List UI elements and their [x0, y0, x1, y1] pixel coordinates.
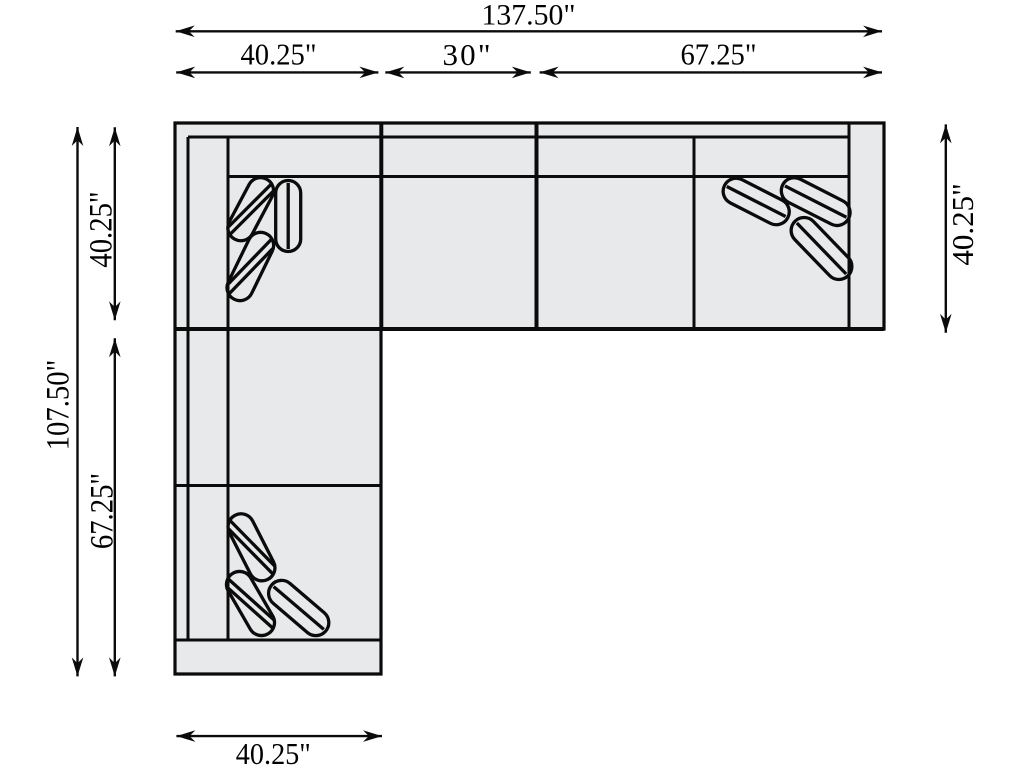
svg-text:40.25": 40.25" [241, 37, 317, 72]
svg-text:40.25": 40.25" [236, 736, 311, 768]
svg-text:40.25": 40.25" [82, 191, 119, 267]
svg-text:30": 30" [443, 37, 491, 72]
svg-text:67.25": 67.25" [83, 473, 120, 549]
svg-text:40.25": 40.25" [945, 183, 980, 265]
svg-text:137.50": 137.50" [482, 0, 576, 31]
svg-text:107.50": 107.50" [38, 360, 75, 451]
svg-text:67.25": 67.25" [681, 37, 757, 72]
